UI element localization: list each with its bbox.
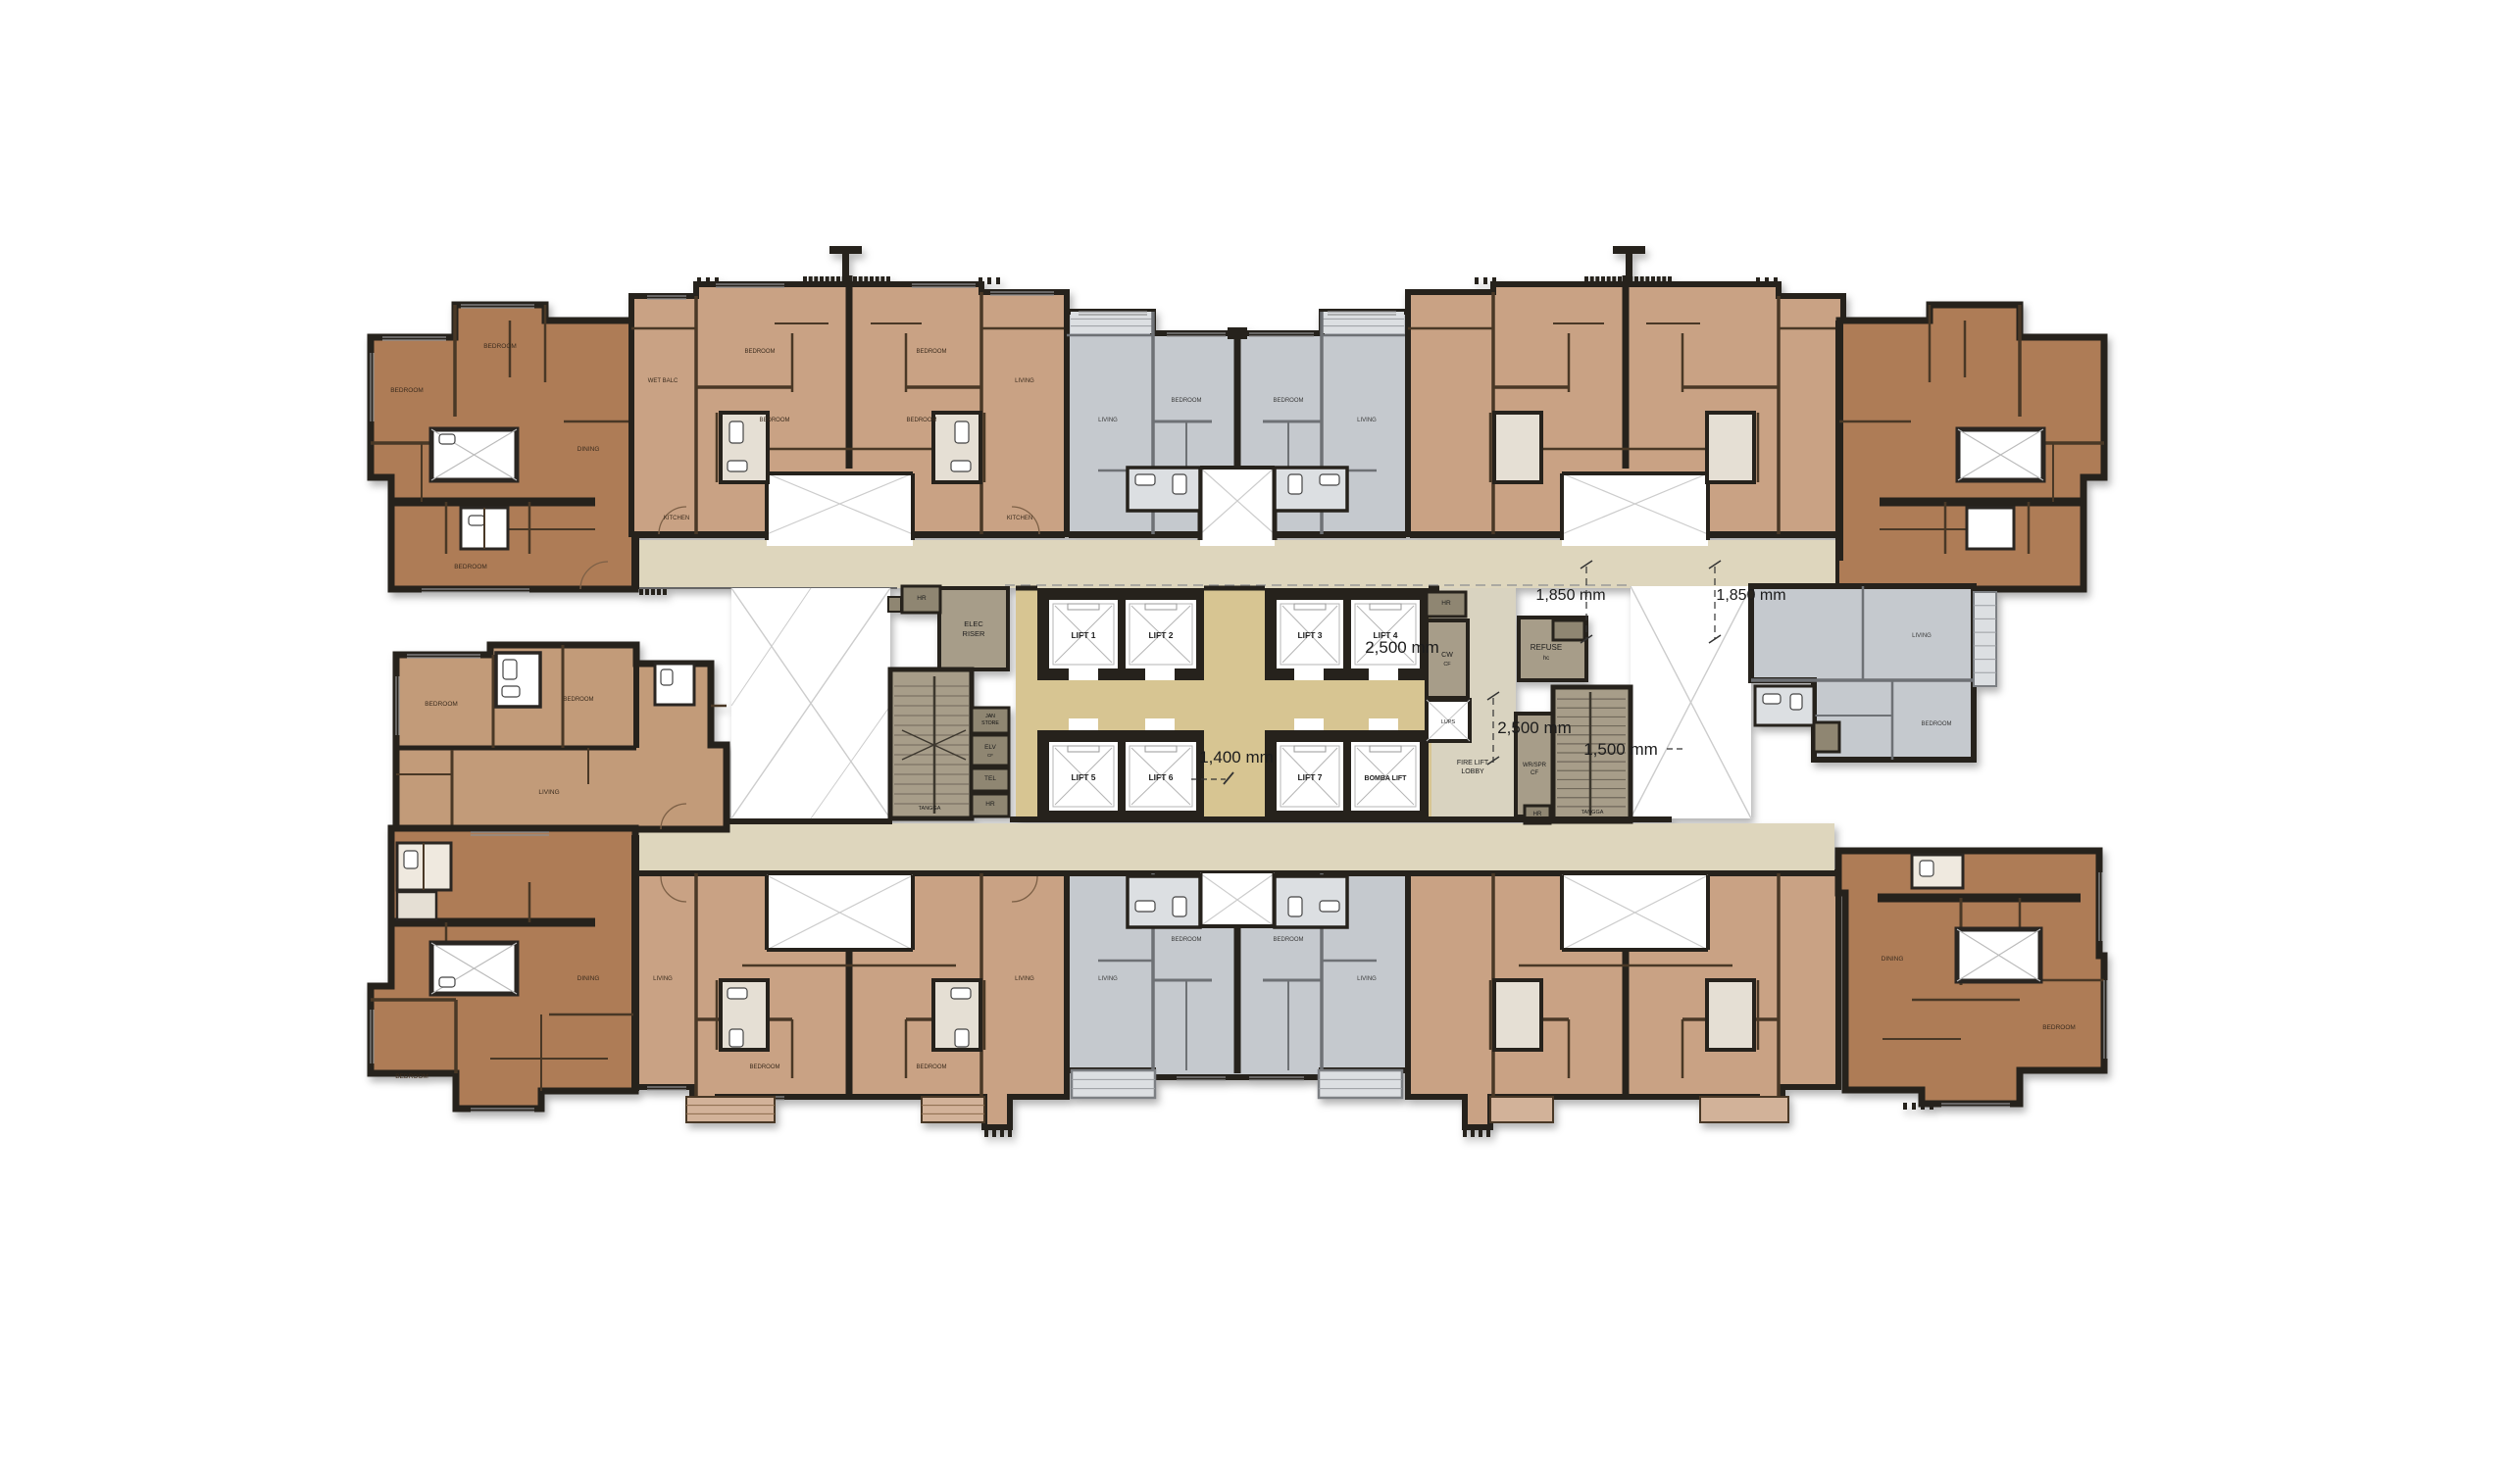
svg-text:HR: HR [1441,600,1451,607]
svg-text:BEDROOM: BEDROOM [2042,1024,2076,1031]
svg-text:1,400 mm: 1,400 mm [1199,748,1274,767]
svg-text:BEDROOM: BEDROOM [1171,937,1201,943]
svg-text:TEL: TEL [984,775,996,782]
svg-text:2,500 mm: 2,500 mm [1365,638,1439,657]
svg-text:BEDROOM: BEDROOM [483,343,517,350]
svg-text:LIVING: LIVING [1098,418,1118,423]
svg-text:DINING: DINING [577,975,600,982]
svg-text:LIFT 5: LIFT 5 [1071,772,1095,782]
svg-text:BOMBA LIFT: BOMBA LIFT [1365,775,1408,782]
svg-text:DINING: DINING [1882,956,1904,963]
svg-text:BEDROOM: BEDROOM [1273,937,1303,943]
svg-text:BEDROOM: BEDROOM [425,701,458,708]
svg-text:BEDROOM: BEDROOM [759,418,789,423]
svg-text:TANGGA: TANGGA [919,806,941,812]
svg-text:1,850 mm: 1,850 mm [1535,587,1605,604]
svg-text:REFUSE: REFUSE [1531,643,1562,652]
svg-text:RISER: RISER [963,629,986,638]
svg-text:ELEC: ELEC [964,619,983,628]
svg-text:BEDROOM: BEDROOM [1171,398,1201,404]
svg-text:LIFT 7: LIFT 7 [1297,772,1322,782]
svg-text:BEDROOM: BEDROOM [395,1073,428,1080]
svg-text:BEDROOM: BEDROOM [916,1064,946,1070]
svg-text:DINING: DINING [577,446,600,453]
svg-text:HR: HR [985,801,995,808]
svg-text:LIFT 3: LIFT 3 [1297,630,1322,640]
svg-text:LIVING: LIVING [1912,633,1932,639]
svg-text:BEDROOM: BEDROOM [1273,398,1303,404]
svg-text:STORE: STORE [981,720,999,726]
svg-text:2,500 mm: 2,500 mm [1497,718,1572,737]
svg-text:FIRE LIFT: FIRE LIFT [1457,760,1489,767]
svg-text:BEDROOM: BEDROOM [744,349,775,355]
svg-text:LIFT 2: LIFT 2 [1148,630,1173,640]
svg-text:BEDROOM: BEDROOM [749,1064,779,1070]
svg-text:ELV: ELV [984,744,996,751]
svg-text:CF: CF [1443,662,1451,668]
svg-text:HR: HR [917,595,927,602]
svg-text:LIVING: LIVING [1357,976,1377,982]
svg-text:KITCHEN: KITCHEN [664,516,689,521]
svg-text:hc: hc [1543,656,1549,662]
svg-text:LIVING: LIVING [653,976,673,982]
svg-text:CW: CW [1441,652,1453,659]
svg-text:CF: CF [1531,770,1538,776]
svg-text:JAN: JAN [985,714,995,719]
svg-text:BEDROOM: BEDROOM [906,418,936,423]
svg-text:BEDROOM: BEDROOM [563,697,593,703]
svg-text:BEDROOM: BEDROOM [454,564,487,570]
svg-text:LIVING: LIVING [1015,378,1034,384]
svg-text:CF: CF [987,753,993,758]
svg-text:LOBBY: LOBBY [1461,768,1484,775]
svg-text:1,500 mm: 1,500 mm [1583,740,1658,759]
svg-text:WET BALC: WET BALC [648,378,678,384]
svg-text:LUPS: LUPS [1441,719,1456,725]
svg-text:LIVING: LIVING [1015,976,1034,982]
svg-text:LIFT 6: LIFT 6 [1148,772,1173,782]
svg-text:LIVING: LIVING [1357,418,1377,423]
svg-text:BEDROOM: BEDROOM [390,387,424,394]
svg-text:LIVING: LIVING [1098,976,1118,982]
svg-text:WR/SPR: WR/SPR [1523,763,1547,768]
svg-text:LIVING: LIVING [538,789,559,796]
svg-text:TANGGA: TANGGA [1581,810,1604,816]
svg-text:LIFT 1: LIFT 1 [1071,630,1095,640]
svg-text:1,850 mm: 1,850 mm [1716,587,1785,604]
svg-text:BEDROOM: BEDROOM [916,349,946,355]
svg-text:KITCHEN: KITCHEN [1007,516,1032,521]
svg-text:BEDROOM: BEDROOM [1921,721,1951,727]
